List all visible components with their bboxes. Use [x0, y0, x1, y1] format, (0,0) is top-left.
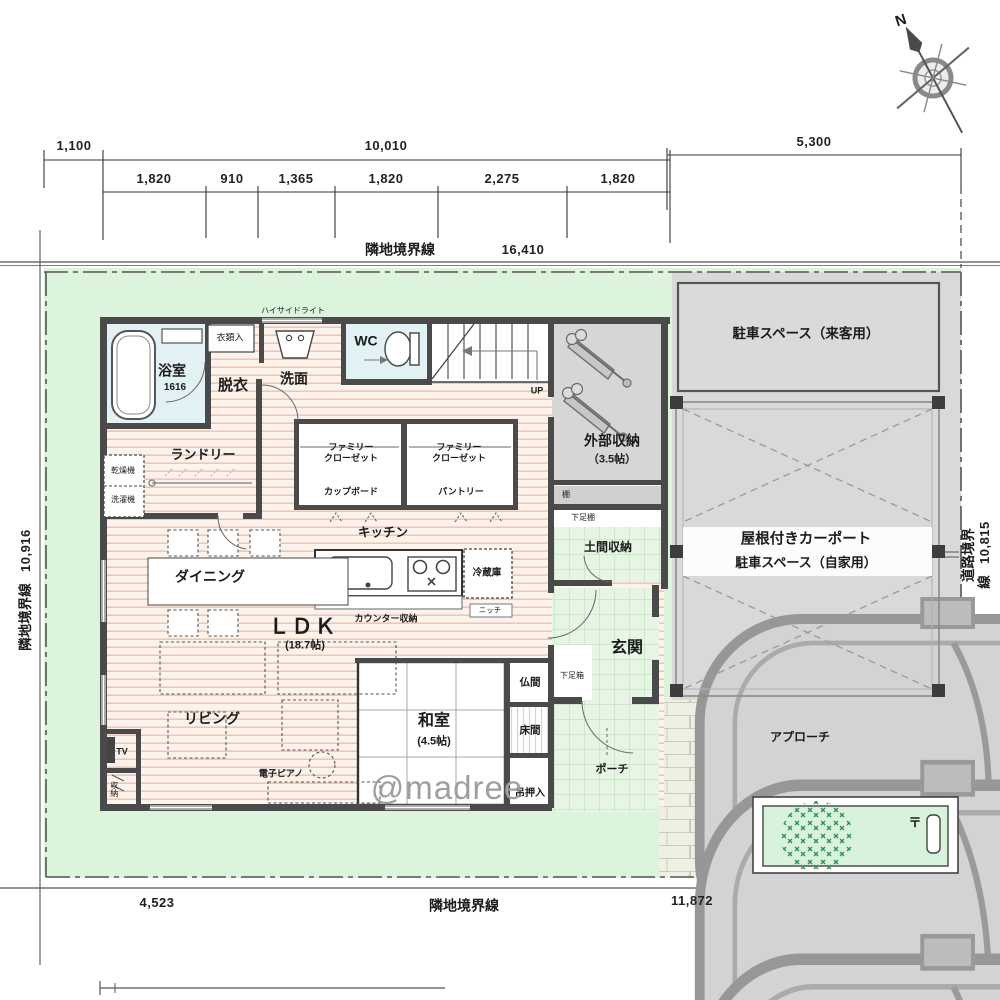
- dim-1820c: 1,820: [600, 171, 635, 187]
- dim-1100: 1,100: [56, 138, 91, 154]
- dim-11872: 11,872: [671, 893, 713, 909]
- dim-2275: 2,275: [484, 171, 519, 187]
- boundary-right-label: 道路境界線 10,815: [961, 521, 993, 589]
- tv: TV: [116, 747, 128, 758]
- piano: 電子ピアノ: [259, 769, 303, 780]
- compass-icon: [865, 5, 1000, 154]
- porch: ポーチ: [596, 763, 629, 776]
- room-dining: ダイニング: [175, 569, 245, 586]
- boundary-top-value: 16,410: [502, 242, 545, 258]
- room-bath-size: 1616: [164, 382, 186, 394]
- approach: アプローチ: [770, 730, 830, 744]
- floorplan-drawing: [0, 0, 1000, 1000]
- washbasin-icon: [276, 331, 314, 358]
- room-kitchen: キッチン: [358, 526, 408, 541]
- boundary-bottom-label: 隣地境界線: [429, 898, 499, 915]
- post-mark: 〒: [908, 815, 921, 831]
- dim-1820a: 1,820: [136, 171, 171, 187]
- shelf: 棚: [562, 490, 570, 500]
- room-family-closet-1: ファミリー クローゼット: [324, 442, 378, 464]
- boundary-left-label: 隣地境界線 10,916: [18, 529, 34, 651]
- closet-cupboard: カップボード: [324, 487, 378, 498]
- planting-bed: [753, 797, 958, 873]
- carport-label: 屋根付きカーポート: [741, 531, 872, 548]
- dim-5300: 5,300: [796, 134, 831, 150]
- room-living: リビング: [184, 711, 240, 728]
- room-washroom: 洗面: [280, 371, 308, 388]
- appliance-fridge: 冷蔵庫: [473, 567, 502, 578]
- parking-visitor-label: 駐車スペース（来客用）: [733, 326, 880, 342]
- room-dressing: 脱衣: [218, 377, 248, 395]
- niche: ニッチ: [479, 606, 502, 615]
- watermark: @madree: [371, 768, 523, 808]
- dim-4523: 4,523: [139, 895, 174, 911]
- dim-10010: 10,010: [365, 138, 408, 154]
- room-ext-storage: 外部収納: [584, 433, 640, 450]
- boundary-top-label: 隣地境界線: [365, 242, 435, 259]
- highside-light: ハイサイドライト: [261, 306, 325, 316]
- appliance-washer: 洗濯機: [111, 495, 135, 505]
- shoe-box: 下足箱: [560, 671, 584, 681]
- room-laundry: ランドリー: [170, 447, 235, 463]
- room-doma-storage: 土間収納: [584, 540, 632, 554]
- counter-storage: カウンター収納: [354, 614, 417, 625]
- dim-1820b: 1,820: [368, 171, 403, 187]
- post-box-icon: [927, 815, 940, 853]
- shoe-shelf: 下足棚: [571, 513, 595, 523]
- dim-910: 910: [220, 171, 243, 187]
- closet-clothes: 衣類入: [216, 333, 243, 344]
- room-tokonoma: 床間: [520, 725, 541, 738]
- room-wc: WC: [354, 333, 377, 350]
- stairs-up: UP: [531, 386, 544, 397]
- room-washitsu-size: (4.5帖): [417, 735, 451, 748]
- storage-nook: 収納: [109, 781, 119, 797]
- appliance-dryer: 乾燥機: [111, 466, 135, 476]
- dim-1365: 1,365: [278, 171, 313, 187]
- floorplan-canvas: 1,100 10,010 5,300 1,820 910 1,365 1,820…: [0, 0, 1000, 1000]
- tree-icon: [781, 801, 853, 873]
- parking-private-label: 駐車スペース（自家用）: [735, 555, 876, 571]
- room-washitsu: 和室: [418, 711, 450, 730]
- room-ldk: ＬＤＫ: [269, 614, 338, 639]
- room-butsuma: 仏間: [520, 677, 541, 690]
- room-ldk-size: (18.7帖): [285, 639, 325, 652]
- closet-pantry: パントリー: [438, 487, 483, 498]
- room-ext-storage-size: （3.5帖）: [588, 453, 636, 466]
- room-bath: 浴室: [158, 363, 186, 380]
- room-genkan: 玄関: [611, 638, 643, 657]
- room-family-closet-2: ファミリー クローゼット: [432, 442, 486, 464]
